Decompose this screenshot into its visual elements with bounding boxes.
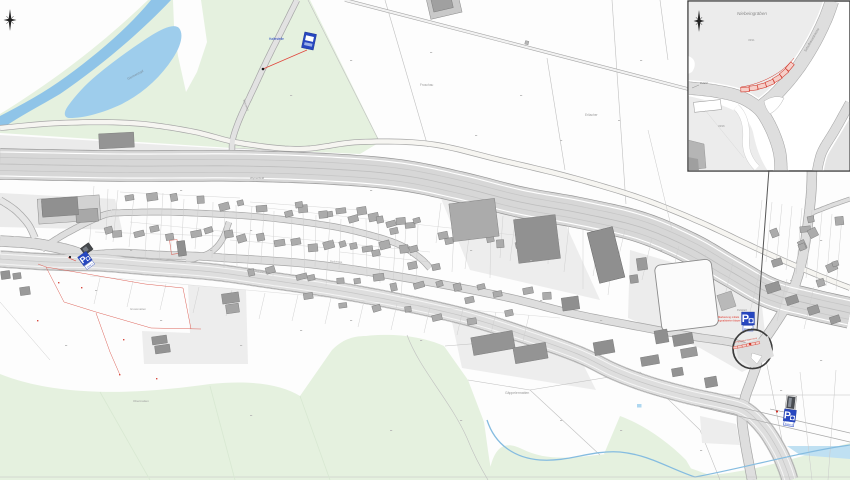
svg-text:Erliacher: Erliacher xyxy=(585,113,599,117)
svg-text:Froschau: Froschau xyxy=(420,83,434,87)
svg-text:P: P xyxy=(742,313,749,325)
svg-text:Parkplatz: Parkplatz xyxy=(737,309,748,312)
svg-text:Markierung mittels: Markierung mittels xyxy=(718,315,740,319)
svg-text:3396: 3396 xyxy=(718,124,725,128)
svg-text:Obermatten: Obermatten xyxy=(133,399,149,403)
svg-text:Niebeingräben: Niebeingräben xyxy=(737,11,767,16)
svg-text:Haltestelle: Haltestelle xyxy=(269,37,284,41)
svg-text:Gäppelermatten: Gäppelermatten xyxy=(505,391,529,395)
svg-text:Wynenfeld: Wynenfeld xyxy=(250,176,264,180)
svg-text:3391: 3391 xyxy=(748,38,755,42)
svg-text:Grossmatten: Grossmatten xyxy=(130,307,146,311)
svg-text:Zufahrt: Zufahrt xyxy=(700,81,708,85)
